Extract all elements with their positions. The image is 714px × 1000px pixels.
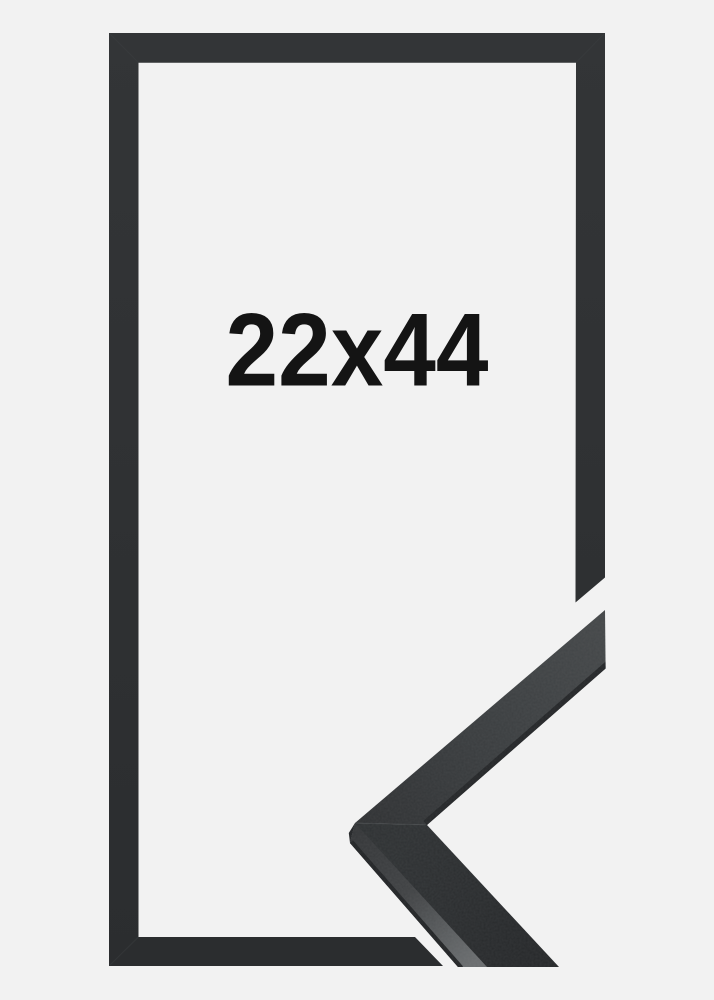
svg-text:22x44: 22x44: [226, 293, 489, 409]
